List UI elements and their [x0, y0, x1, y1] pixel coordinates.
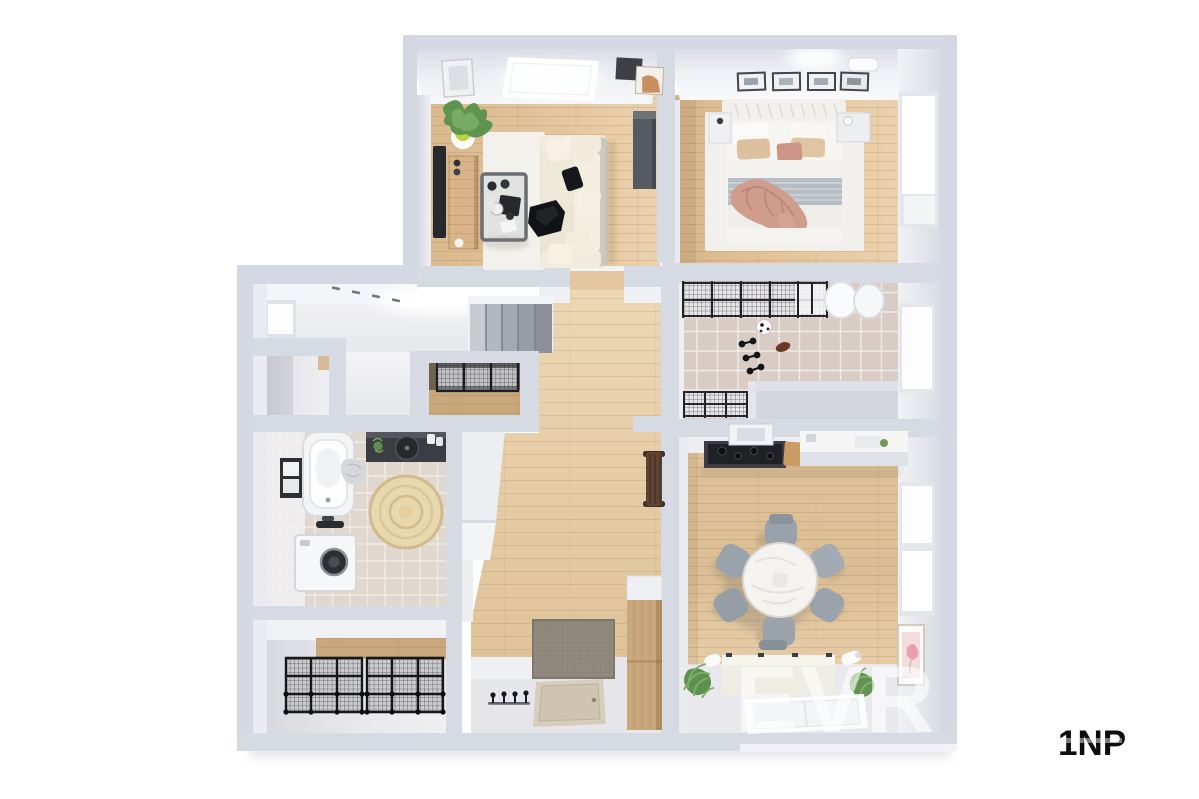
svg-text:EVR: EVR	[735, 647, 936, 753]
svg-text:1NP: 1NP	[1058, 724, 1126, 763]
